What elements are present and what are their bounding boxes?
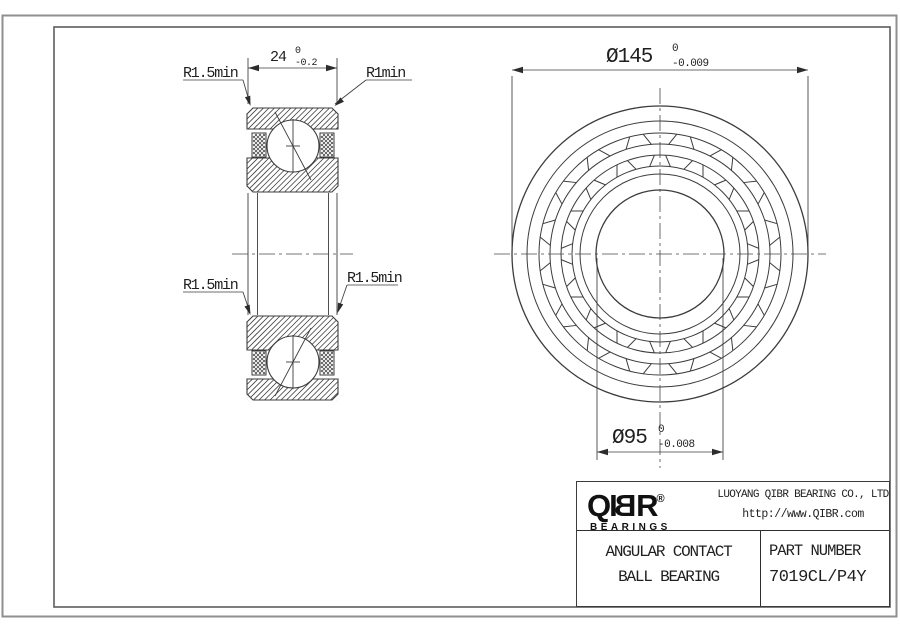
radius-label-top-right: R1min bbox=[366, 65, 405, 82]
radius-label-mid-left: R1.5min bbox=[183, 277, 238, 294]
radius-label-mid-right: R1.5min bbox=[347, 270, 402, 287]
company-info: LUOYANG QIBR BEARING CO., LTD http://www… bbox=[715, 485, 891, 529]
title-block-header-row: QIBR® BEARINGS LUOYANG QIBR BEARING CO.,… bbox=[577, 482, 889, 531]
outer-diameter-tol-lower: -0.009 bbox=[672, 58, 709, 70]
product-name-line1: ANGULAR CONTACT bbox=[577, 541, 760, 563]
part-number-label: PART NUMBER bbox=[769, 540, 891, 562]
width-dimension-text: 24 bbox=[270, 49, 287, 66]
logo: QIBR® BEARINGS bbox=[587, 483, 727, 529]
outer-diameter-text: Ø145 bbox=[606, 46, 653, 69]
product-name-line2: BALL BEARING bbox=[577, 563, 760, 591]
title-block-bottom-row: ANGULAR CONTACT BALL BEARING PART NUMBER… bbox=[577, 531, 889, 606]
radius-label-top-left: R1.5min bbox=[183, 65, 238, 82]
outer-diameter-tol-upper: 0 bbox=[672, 43, 678, 55]
drawing-sheet: 24 0 -0.2 R1.5min R1min R1.5min R1.5min … bbox=[0, 0, 900, 636]
part-number-cell: PART NUMBER 7019CL/P4Y bbox=[760, 531, 891, 606]
part-number-value: 7019CL/P4Y bbox=[769, 566, 891, 590]
bore-diameter-tol-upper: 0 bbox=[658, 424, 664, 436]
registered-mark: ® bbox=[657, 493, 665, 505]
product-name-cell: ANGULAR CONTACT BALL BEARING bbox=[577, 531, 760, 606]
title-block: QIBR® BEARINGS LUOYANG QIBR BEARING CO.,… bbox=[576, 481, 890, 607]
company-url: http://www.QIBR.com bbox=[715, 505, 891, 525]
company-name: LUOYANG QIBR BEARING CO., LTD bbox=[715, 485, 891, 505]
width-tol-lower: -0.2 bbox=[295, 58, 318, 69]
bore-diameter-text: Ø95 bbox=[612, 427, 647, 450]
width-tol-upper: 0 bbox=[295, 46, 301, 57]
logo-text: QIBR® bbox=[587, 483, 727, 522]
bore-diameter-tol-lower: -0.008 bbox=[658, 439, 695, 451]
